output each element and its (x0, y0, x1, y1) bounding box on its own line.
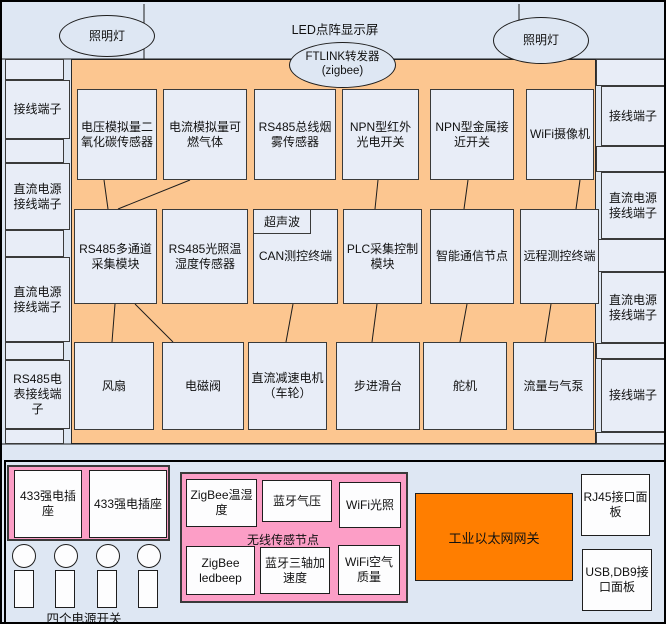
rs485-smoke-sensor: RS485总线烟雾传感器 (254, 89, 336, 180)
servo: 舵机 (423, 342, 507, 430)
dc-power-terminal-right-2: 直流电源接线端子 (601, 272, 665, 343)
dc-power-terminal-left-2: 直流电源接线端子 (5, 257, 70, 342)
power-switch-knob (96, 544, 120, 568)
power-switch-body (97, 570, 117, 608)
terminal-block-left-1: 接线端子 (5, 80, 70, 139)
bluetooth-pressure-node: 蓝牙气压 (262, 480, 332, 522)
power-switch-body (14, 570, 34, 608)
current-gas-sensor: 电流模拟量可燃气体 (163, 89, 247, 180)
ultrasonic-tag: 超声波 (253, 209, 311, 234)
lamp-right: 照明灯 (493, 17, 589, 64)
power-switch-body (138, 570, 158, 608)
terminal-strip (5, 342, 64, 360)
bluetooth-accelerometer-node: 蓝牙三轴加速度 (260, 547, 330, 594)
rs485-light-temp-humidity-sensor: RS485光照温湿度传感器 (162, 209, 248, 304)
terminal-strip (596, 146, 666, 172)
power-switch-knob (137, 544, 161, 568)
voltage-co2-sensor: 电压模拟量二氧化碳传感器 (77, 89, 157, 180)
zigbee-ledbeep-node: ZigBee ledbeep (186, 546, 255, 595)
rs485-multichannel-module: RS485多通道采集模块 (74, 209, 157, 304)
dc-power-terminal-left-1: 直流电源接线端子 (5, 163, 70, 230)
stepper-slide: 步进滑台 (336, 342, 420, 430)
terminal-strip (596, 59, 666, 86)
power-switch-knob (54, 544, 78, 568)
npn-photoelectric-switch: NPN型红外光电开关 (342, 89, 419, 180)
terminal-block-right-2: 接线端子 (601, 359, 665, 432)
power-switch-knob (12, 544, 36, 568)
terminal-strip (5, 59, 64, 80)
flow-and-air-pump: 流量与气泵 (513, 342, 594, 430)
industrial-ethernet-gateway: 工业以太网网关 (415, 493, 573, 581)
remote-control-terminal: 远程测控终端 (520, 209, 599, 304)
terminal-strip (596, 343, 666, 359)
fan: 风扇 (74, 342, 154, 430)
power-switches-label: 四个电源开关 (34, 608, 134, 624)
terminal-strip (5, 429, 64, 444)
led-matrix-display-title: LED点阵显示屏 (252, 19, 418, 38)
terminal-strip (596, 239, 666, 272)
ftlink-zigbee-repeater: FTLINK转发器 (zigbee) (289, 42, 396, 88)
power-switch-body (55, 570, 75, 608)
terminal-strip (5, 230, 64, 257)
solenoid-valve: 电磁阀 (162, 342, 244, 430)
zigbee-temp-humidity-node: ZigBee温湿度 (186, 479, 257, 527)
terminal-strip (5, 139, 64, 163)
smart-comm-node: 智能通信节点 (430, 209, 514, 304)
wifi-camera: WiFi摄像机 (526, 89, 594, 180)
wifi-air-quality-node: WiFi空气质量 (338, 545, 400, 595)
rj45-interface-panel: RJ45接口面板 (581, 474, 650, 536)
terminal-strip (596, 432, 666, 444)
wifi-light-node: WiFi光照 (339, 482, 401, 528)
usb-db9-interface-panel: USB,DB9接口面板 (582, 549, 652, 611)
terminal-block-right-1: 接线端子 (601, 86, 665, 146)
plc-acquisition-module: PLC采集控制模块 (343, 209, 422, 304)
npn-proximity-switch: NPN型金属接近开关 (430, 89, 514, 180)
socket-433-2: 433强电插座 (89, 470, 167, 538)
dc-power-terminal-right-1: 直流电源接线端子 (601, 172, 665, 239)
lab-equipment-diagram: LED点阵显示屏 照明灯 照明灯 FTLINK转发器 (zigbee) 接线端子… (0, 0, 666, 624)
rs485-meter-terminal: RS485电表接线端子 (5, 360, 70, 429)
dc-gear-motor: 直流减速电机（车轮） (248, 342, 327, 430)
socket-433-1: 433强电插座 (14, 470, 82, 538)
lamp-left: 照明灯 (59, 15, 155, 57)
